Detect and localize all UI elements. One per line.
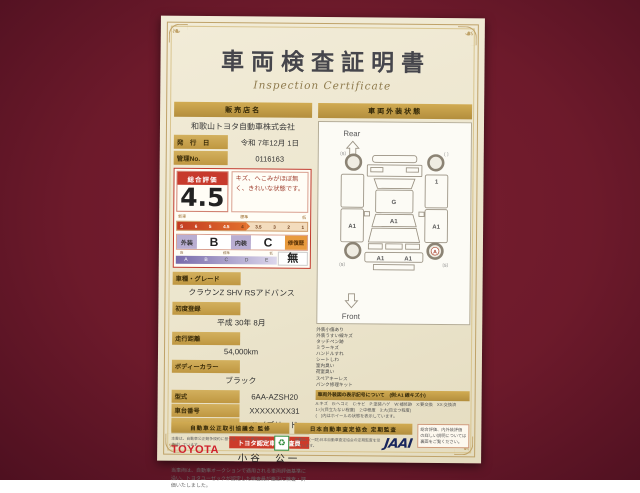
- mark-roof: G: [392, 200, 397, 206]
- scale-tick: 1: [302, 225, 305, 230]
- detail-field-value: 平成 30年 8月: [172, 315, 310, 332]
- grade-row: 外装 B 内装 C 修復歴: [176, 234, 308, 251]
- detail-field-label: 初度登録: [172, 302, 240, 316]
- corner-flourish: [169, 24, 191, 46]
- interior-label: 内装: [231, 235, 251, 249]
- detail-field: 車種・グレード クラウンZ SHV RSアドバンス: [172, 272, 310, 302]
- control-number-label: 管理No.: [174, 151, 228, 165]
- dealer-name: 和歌山トヨタ自動車株式会社: [174, 121, 312, 133]
- certificate-footer: 自動車公正取引協議会 監修 本書は、自動車公正競争規約に基づき、公正な表示により…: [171, 422, 469, 453]
- interior-grade: C: [251, 236, 285, 250]
- grade-letter: C: [216, 256, 236, 264]
- fair-trade-group: 自動車公正取引協議会 監修 本書は、自動車公正競争規約に基づき、公正な表示により…: [171, 422, 289, 451]
- score-scale-bar: S654.543.5321: [176, 221, 308, 232]
- certificate-paper: 車両検査証明書 Inspection Certificate 販売店名 和歌山ト…: [157, 16, 485, 464]
- issue-date-label: 発 行 日: [174, 135, 228, 149]
- grade-letter: B: [196, 256, 216, 264]
- mark-front-right-wheel: A: [433, 249, 437, 255]
- exterior-header: 車両外装状態: [318, 103, 472, 119]
- grade-scale: 高 標準 低 ABCDE: [176, 251, 277, 266]
- grade-letter: A: [176, 256, 196, 264]
- detail-field: 型式 6AA-AZSH20: [172, 390, 310, 404]
- detail-field-label: ボディーカラー: [172, 360, 240, 374]
- condition-legend: 外装小傷あり外装うすい線キズタッチペン跡ミラーキズハンドルすれシートしわ室内臭い…: [316, 327, 471, 389]
- dealer-header: 販売店名: [174, 102, 312, 118]
- legend-item: パンク修理キット: [316, 382, 470, 389]
- inspector-name: 小谷 公一: [229, 450, 309, 465]
- detail-field-label: 型式: [172, 390, 240, 404]
- detail-field: ボディーカラー ブラック: [172, 360, 310, 390]
- wheel-note-rear-right: 〔 〕: [441, 152, 451, 157]
- symbols-notes: A:キズ B:ヘコミ C:サビ P:塗装ハゲ W:補修跡 X:要交換 XX:交換…: [315, 401, 469, 421]
- scale-tick: 3: [273, 224, 276, 229]
- jaai-logo: JAAI: [383, 437, 413, 452]
- overall-evaluation-box: 総合評価 4.5 キズ、へこみがほぼ無く、きれいな状態です。 新車 標準 低: [173, 168, 312, 269]
- detail-field-value: XXXXXXXX31: [239, 407, 309, 417]
- mark-bumper-right: A1: [404, 256, 412, 262]
- mark-bumper-left: A1: [377, 256, 385, 262]
- scale-tick: 2: [287, 224, 290, 229]
- symbols-note-line: ( )内はホイールの状態を表示しています。: [315, 413, 469, 420]
- see-back-note: 総合評価、内外装評価の詳しい説明については裏面をご覧ください。: [417, 424, 469, 449]
- recycle-logo: ♻: [274, 436, 289, 451]
- mark-windshield: A1: [390, 219, 398, 225]
- detail-field-value: クラウンZ SHV RSアドバンス: [172, 285, 310, 302]
- rear-label: Rear: [343, 129, 360, 138]
- grade-letter: E: [257, 257, 277, 265]
- fair-trade-banner: 自動車公正取引協議会 監修: [171, 422, 289, 434]
- symbols-banner: 車両外装図の表示記号について (例:A1 線キズ小): [316, 390, 470, 401]
- repair-history-label: 修復歴: [285, 236, 307, 250]
- control-number-value: 0116163: [228, 154, 312, 164]
- scale-tick: 4: [241, 224, 244, 229]
- scale-tick: 5: [209, 224, 212, 229]
- fair-trade-note: 本書は、自動車公正競争規約に基づき、公正な表示により作成しています。: [171, 437, 271, 448]
- scale-tick: 4.5: [223, 224, 229, 229]
- score-scale-labels: 新車 標準 低: [176, 214, 308, 221]
- repair-history-value: 無: [278, 252, 308, 266]
- detail-field-label: 走行距離: [172, 332, 240, 346]
- mark-right-door: A1: [432, 225, 440, 231]
- evaluation-comment: キズ、へこみがほぼ無く、きれいな状態です。: [231, 171, 308, 213]
- detail-field-label: 車台番号: [171, 404, 239, 418]
- evaluation-score: 4.5: [177, 185, 227, 212]
- front-label: Front: [342, 312, 361, 321]
- corner-flourish: [455, 26, 477, 48]
- scale-tick: 6: [195, 224, 198, 229]
- detail-field-label: 車種・グレード: [173, 272, 241, 286]
- mark-right-rear: 1: [435, 180, 439, 186]
- scale-tick: S: [180, 224, 183, 229]
- appraisal-note: 本書は、(一財)日本自動車査定協会の定期監査を受けています。: [294, 438, 381, 449]
- appraisal-group: 日本自動車査定協会 定期監査 本書は、(一財)日本自動車査定協会の定期監査を受け…: [294, 423, 412, 452]
- wheel-note-front-right: 〔5〕: [440, 263, 451, 268]
- exterior-grade: B: [197, 235, 231, 249]
- car-diagram: G A1 A1 A1 1 A1 A1 A 〔5〕 〔 〕 〔5〕: [317, 122, 471, 324]
- exterior-label: 外装: [177, 235, 197, 249]
- photo-background: 車両検査証明書 Inspection Certificate 販売店名 和歌山ト…: [0, 0, 640, 480]
- detail-field-value: 54,000km: [172, 345, 310, 360]
- wheel-note-front-left: 〔5〕: [337, 262, 348, 267]
- detail-field: 車台番号 XXXXXXXX31: [171, 404, 309, 418]
- detail-field: 走行距離 54,000km: [172, 332, 310, 360]
- vehicle-detail-fields: 車種・グレード クラウンZ SHV RSアドバンス 初度登録 平成 30年 8月…: [171, 272, 310, 432]
- issue-date-value: 令和 7年12月 1日: [228, 137, 312, 149]
- detail-field-value: ブラック: [172, 373, 310, 390]
- mark-left-door: A1: [348, 224, 356, 230]
- wheel-note-rear-left: 〔5〕: [338, 151, 349, 156]
- detail-field: 初度登録 平成 30年 8月: [172, 302, 310, 332]
- detail-field-value: 6AA-AZSH20: [240, 393, 310, 403]
- car-diagram-box: G A1 A1 A1 1 A1 A1 A 〔5〕 〔 〕 〔5〕: [316, 121, 472, 325]
- appraisal-banner: 日本自動車査定協会 定期監査: [294, 423, 412, 435]
- scale-tick: 3.5: [255, 224, 261, 229]
- grade-letter: D: [236, 257, 256, 265]
